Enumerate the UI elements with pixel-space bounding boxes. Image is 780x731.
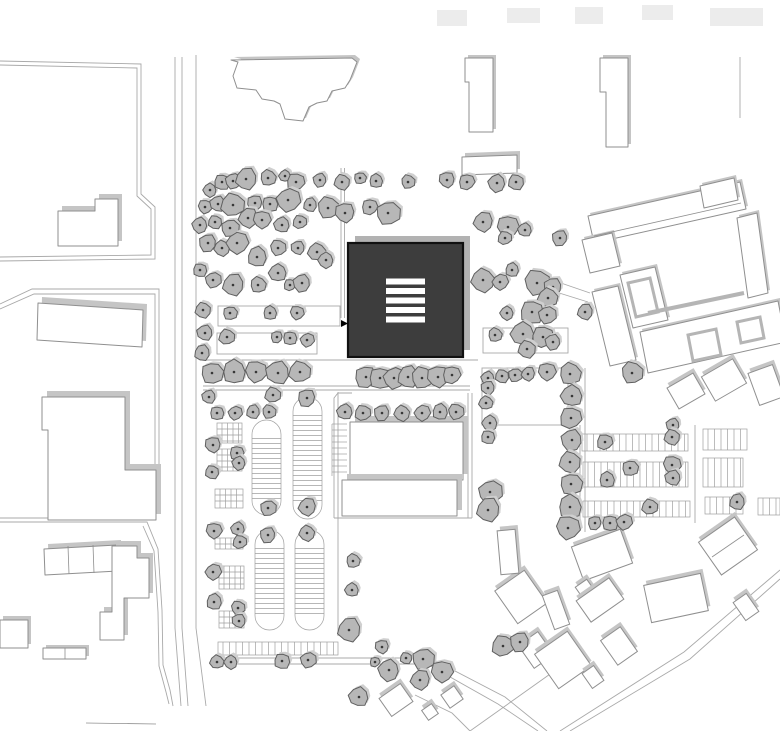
tree-trunk-dot bbox=[277, 247, 280, 250]
building-footprint bbox=[44, 545, 118, 575]
tree-trunk-dot bbox=[229, 227, 232, 230]
tree-trunk-dot bbox=[487, 387, 490, 390]
tree-trunk-dot bbox=[232, 180, 235, 183]
building-footprint bbox=[37, 303, 143, 347]
building-footprint bbox=[42, 397, 156, 520]
tree-trunk-dot bbox=[316, 251, 319, 254]
tree-trunk-dot bbox=[546, 314, 549, 317]
house bbox=[731, 588, 761, 620]
tree-trunk-dot bbox=[511, 269, 514, 272]
tree-trunk-dot bbox=[306, 397, 309, 400]
tree-trunk-dot bbox=[272, 394, 275, 397]
tree-trunk-dot bbox=[671, 436, 674, 439]
tree-trunk-dot bbox=[269, 312, 272, 315]
tree-trunk-dot bbox=[524, 229, 527, 232]
tree-trunk-dot bbox=[359, 177, 362, 180]
tree-trunk-dot bbox=[519, 641, 522, 644]
tree-trunk-dot bbox=[546, 371, 549, 374]
building-footprint bbox=[231, 58, 357, 121]
tree-trunk-dot bbox=[255, 371, 258, 374]
main-building-stripe bbox=[386, 298, 425, 304]
tree-trunk-dot bbox=[327, 207, 330, 210]
tree-trunk-dot bbox=[341, 181, 344, 184]
tree-trunk-dot bbox=[542, 336, 545, 339]
tree-trunk-dot bbox=[287, 199, 290, 202]
tree-trunk-dot bbox=[375, 180, 378, 183]
tree-trunk-dot bbox=[245, 178, 248, 181]
house bbox=[699, 354, 749, 401]
tree-trunk-dot bbox=[374, 661, 377, 664]
tree-trunk-dot bbox=[482, 279, 485, 282]
road-line bbox=[143, 526, 169, 704]
tree-trunk-dot bbox=[672, 424, 675, 427]
tree-trunk-dot bbox=[256, 256, 259, 259]
parking-bay bbox=[295, 530, 324, 630]
tree-trunk-dot bbox=[281, 660, 284, 663]
tree-trunk-dot bbox=[212, 571, 215, 574]
tree-trunk-dot bbox=[437, 376, 440, 379]
tree-trunk-dot bbox=[405, 657, 408, 660]
tree-trunk-dot bbox=[736, 501, 739, 504]
tree-trunk-dot bbox=[199, 269, 202, 272]
tree-trunk-dot bbox=[213, 601, 216, 604]
tree-trunk-dot bbox=[325, 259, 328, 262]
tree-trunk-dot bbox=[439, 411, 442, 414]
tree-trunk-dot bbox=[401, 412, 404, 415]
tree-trunk-dot bbox=[214, 221, 217, 224]
tree-trunk-dot bbox=[623, 521, 626, 524]
tree-trunk-dot bbox=[501, 375, 504, 378]
tree-trunk-dot bbox=[237, 528, 240, 531]
tree-trunk-dot bbox=[569, 461, 572, 464]
parking-bay bbox=[255, 530, 284, 630]
tree-trunk-dot bbox=[276, 336, 279, 339]
tree-trunk-dot bbox=[441, 671, 444, 674]
tree-trunk-dot bbox=[487, 509, 490, 512]
tree-trunk-dot bbox=[239, 541, 242, 544]
tree-trunk-dot bbox=[466, 181, 469, 184]
tree-trunk-dot bbox=[487, 436, 490, 439]
tree-trunk-dot bbox=[649, 506, 652, 509]
main-building-stripe bbox=[386, 317, 425, 323]
tree-trunk-dot bbox=[487, 377, 490, 380]
courtyard bbox=[688, 329, 721, 361]
tree-trunk-dot bbox=[369, 206, 372, 209]
house bbox=[598, 622, 640, 665]
distant-structure bbox=[507, 8, 540, 23]
tree-trunk-dot bbox=[211, 471, 214, 474]
tree-trunk-dot bbox=[252, 411, 255, 414]
distant-structures-layer bbox=[437, 5, 763, 26]
tree-trunk-dot bbox=[226, 336, 229, 339]
tree-trunk-dot bbox=[358, 696, 361, 699]
distant-structure bbox=[642, 5, 673, 20]
tree-trunk-dot bbox=[309, 204, 312, 207]
main-building-stripe bbox=[386, 307, 425, 313]
tree-trunk-dot bbox=[388, 669, 391, 672]
tree-trunk-dot bbox=[213, 530, 216, 533]
house-footprint bbox=[379, 684, 413, 717]
tree-trunk-dot bbox=[217, 203, 220, 206]
tree-trunk-dot bbox=[379, 377, 382, 380]
tree-trunk-dot bbox=[482, 221, 485, 224]
tree-trunk-dot bbox=[571, 439, 574, 442]
tree-trunk-dot bbox=[295, 181, 298, 184]
tree-trunk-dot bbox=[489, 422, 492, 425]
tree-trunk-dot bbox=[571, 395, 574, 398]
tree-trunk-dot bbox=[552, 341, 555, 344]
tree-trunk-dot bbox=[485, 402, 488, 405]
courtyard bbox=[737, 317, 764, 343]
tree-trunk-dot bbox=[212, 279, 215, 282]
building-footprint bbox=[600, 58, 628, 147]
tree-trunk-dot bbox=[221, 247, 224, 250]
road-line bbox=[182, 57, 188, 706]
parking-bay bbox=[758, 498, 780, 515]
tree-trunk-dot bbox=[594, 522, 597, 525]
tree-trunk-dot bbox=[504, 237, 507, 240]
tree-trunk-dot bbox=[216, 661, 219, 664]
tree-trunk-dot bbox=[234, 412, 237, 415]
house-footprint bbox=[497, 529, 519, 574]
tree-trunk-dot bbox=[629, 467, 632, 470]
tree-trunk-dot bbox=[202, 309, 205, 312]
tree-trunk-dot bbox=[351, 589, 354, 592]
building-footprint bbox=[465, 58, 493, 132]
tree-trunk-dot bbox=[567, 527, 570, 530]
tree-trunk-dot bbox=[301, 282, 304, 285]
tree-trunk-dot bbox=[559, 237, 562, 240]
tree-trunk-dot bbox=[451, 374, 454, 377]
road-line bbox=[213, 664, 538, 731]
tree-trunk-dot bbox=[254, 202, 257, 205]
tree-trunk-dot bbox=[211, 372, 214, 375]
main-building-layer bbox=[341, 236, 470, 357]
tree-trunk-dot bbox=[306, 532, 309, 535]
tree-trunk-dot bbox=[237, 607, 240, 610]
tree-trunk-dot bbox=[238, 462, 241, 465]
tree-trunk-dot bbox=[672, 477, 675, 480]
house-footprint bbox=[571, 529, 632, 581]
tree-trunk-dot bbox=[230, 661, 233, 664]
tree-trunk-dot bbox=[362, 412, 365, 415]
tree-trunk-dot bbox=[381, 412, 384, 415]
tree-trunk-dot bbox=[570, 417, 573, 420]
tree-trunk-dot bbox=[297, 247, 300, 250]
tree-trunk-dot bbox=[604, 441, 607, 444]
tree-trunk-dot bbox=[281, 224, 284, 227]
tree-trunk-dot bbox=[207, 242, 210, 245]
distant-structure bbox=[710, 8, 763, 26]
tree-trunk-dot bbox=[526, 348, 529, 351]
tree-trunk-dot bbox=[277, 372, 280, 375]
tree-trunk-dot bbox=[515, 181, 518, 184]
tree-trunk-dot bbox=[296, 312, 299, 315]
tree-trunk-dot bbox=[289, 337, 292, 340]
tree-trunk-dot bbox=[489, 491, 492, 494]
tree-trunk-dot bbox=[419, 679, 422, 682]
house bbox=[497, 525, 522, 575]
tree-trunk-dot bbox=[570, 483, 573, 486]
tree-trunk-dot bbox=[446, 179, 449, 182]
main-building-stripe bbox=[386, 279, 425, 285]
tree-trunk-dot bbox=[306, 339, 309, 342]
house bbox=[643, 569, 711, 623]
tree-trunk-dot bbox=[348, 629, 351, 632]
tree-trunk-dot bbox=[268, 411, 271, 414]
distant-structure bbox=[437, 10, 467, 26]
tree-trunk-dot bbox=[232, 284, 235, 287]
tree-trunk-dot bbox=[606, 479, 609, 482]
tree-trunk-dot bbox=[277, 272, 280, 275]
house bbox=[439, 681, 466, 708]
tree-trunk-dot bbox=[238, 620, 241, 623]
tree-trunk-dot bbox=[421, 377, 424, 380]
tree-trunk-dot bbox=[261, 219, 264, 222]
tree-trunk-dot bbox=[507, 226, 510, 229]
building-footprint bbox=[43, 648, 86, 659]
house bbox=[747, 360, 780, 406]
house-footprint bbox=[495, 570, 547, 623]
tree-trunk-dot bbox=[204, 332, 207, 335]
tree-trunk-dot bbox=[267, 177, 270, 180]
tree-trunk-dot bbox=[299, 371, 302, 374]
site-plan-drawing bbox=[0, 0, 780, 731]
tree-trunk-dot bbox=[496, 182, 499, 185]
tree-trunk-dot bbox=[502, 645, 505, 648]
tree-trunk-dot bbox=[569, 506, 572, 509]
tree-trunk-dot bbox=[422, 658, 425, 661]
tree-trunk-dot bbox=[569, 373, 572, 376]
tree-trunk-dot bbox=[536, 282, 539, 285]
tree-trunk-dot bbox=[344, 212, 347, 215]
house bbox=[665, 368, 708, 409]
tree-trunk-dot bbox=[522, 333, 525, 336]
tree-trunk-dot bbox=[236, 452, 239, 455]
detail-line bbox=[86, 723, 156, 724]
tree-trunk-dot bbox=[267, 534, 270, 537]
main-building-stripe bbox=[386, 288, 425, 294]
tree-trunk-dot bbox=[494, 334, 497, 337]
tree-trunk-dot bbox=[199, 224, 202, 227]
house bbox=[570, 524, 635, 580]
road-line bbox=[175, 57, 181, 706]
tree-trunk-dot bbox=[216, 412, 219, 415]
distant-structure bbox=[575, 7, 603, 24]
tree-trunk-dot bbox=[306, 506, 309, 509]
tree-trunk-dot bbox=[209, 189, 212, 192]
building-footprint bbox=[342, 480, 457, 516]
tree-trunk-dot bbox=[267, 507, 270, 510]
tree-trunk-dot bbox=[201, 352, 204, 355]
tree-trunk-dot bbox=[514, 374, 517, 377]
tree-trunk-dot bbox=[527, 373, 530, 376]
tree-trunk-dot bbox=[387, 212, 390, 215]
building-footprint bbox=[350, 422, 463, 480]
tree-trunk-dot bbox=[584, 311, 587, 314]
tree-trunk-dot bbox=[208, 396, 211, 399]
tree-trunk-dot bbox=[499, 281, 502, 284]
tree-trunk-dot bbox=[609, 522, 612, 525]
tree-trunk-dot bbox=[344, 411, 347, 414]
tree-trunk-dot bbox=[229, 312, 232, 315]
tree-trunk-dot bbox=[284, 175, 287, 178]
tree-trunk-dot bbox=[407, 376, 410, 379]
tree-trunk-dot bbox=[393, 377, 396, 380]
tree-trunk-dot bbox=[233, 371, 236, 374]
tree-trunk-dot bbox=[455, 411, 458, 414]
tree-trunk-dot bbox=[407, 181, 410, 184]
tree-trunk-dot bbox=[365, 376, 368, 379]
road-line bbox=[470, 667, 560, 731]
tree-trunk-dot bbox=[221, 181, 224, 184]
house bbox=[696, 512, 760, 575]
tree-trunk-dot bbox=[269, 203, 272, 206]
house bbox=[377, 679, 416, 717]
bike-rack-grid bbox=[215, 489, 243, 508]
tree-trunk-dot bbox=[506, 312, 509, 315]
tree-trunk-dot bbox=[204, 206, 207, 209]
tree-trunk-dot bbox=[352, 560, 355, 563]
house bbox=[541, 586, 573, 630]
tree-trunk-dot bbox=[257, 284, 260, 287]
tree-trunk-dot bbox=[547, 297, 550, 300]
building-footprint bbox=[0, 620, 28, 648]
tree-trunk-dot bbox=[307, 659, 310, 662]
tree-trunk-dot bbox=[212, 444, 215, 447]
tree-trunk-dot bbox=[289, 284, 292, 287]
tree-trunk-dot bbox=[319, 179, 322, 182]
tree-trunk-dot bbox=[247, 217, 250, 220]
tree-trunk-dot bbox=[299, 221, 302, 224]
tree-trunk-dot bbox=[671, 464, 674, 467]
tree-trunk-dot bbox=[236, 242, 239, 245]
site-plan bbox=[0, 0, 780, 731]
house bbox=[419, 699, 440, 721]
tree-trunk-dot bbox=[531, 311, 534, 314]
tree-trunk-dot bbox=[631, 372, 634, 375]
tree-trunk-dot bbox=[381, 646, 384, 649]
house-footprint bbox=[701, 359, 746, 401]
tree-trunk-dot bbox=[421, 412, 424, 415]
tree-trunk-dot bbox=[232, 204, 235, 207]
building-footprint bbox=[462, 155, 517, 175]
road-line bbox=[556, 292, 588, 302]
parking-bay bbox=[703, 458, 743, 487]
